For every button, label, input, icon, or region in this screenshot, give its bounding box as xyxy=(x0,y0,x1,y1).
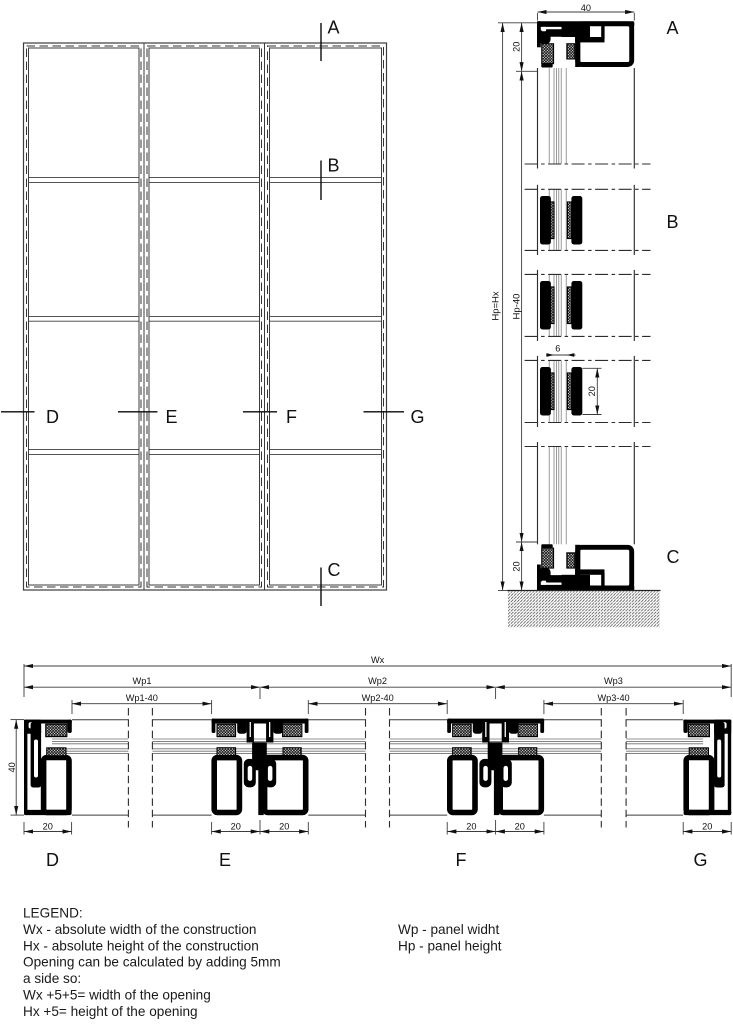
svg-text:20: 20 xyxy=(515,821,525,831)
svg-text:LEGEND:: LEGEND: xyxy=(23,906,83,921)
svg-text:G: G xyxy=(694,850,708,870)
svg-text:Wp2-40: Wp2-40 xyxy=(362,693,394,703)
svg-text:E: E xyxy=(166,407,178,427)
svg-text:Wp1: Wp1 xyxy=(133,676,152,686)
svg-text:A: A xyxy=(328,18,340,38)
svg-text:20: 20 xyxy=(231,821,241,831)
svg-text:Wx - absolute width of the con: Wx - absolute width of the construction xyxy=(23,922,256,937)
svg-text:F: F xyxy=(286,407,297,427)
svg-text:20: 20 xyxy=(279,821,289,831)
svg-text:20: 20 xyxy=(466,821,476,831)
svg-text:20: 20 xyxy=(587,386,597,396)
svg-text:C: C xyxy=(667,547,680,567)
svg-text:Wp2: Wp2 xyxy=(368,676,387,686)
svg-text:Wp3: Wp3 xyxy=(604,676,623,686)
svg-text:6: 6 xyxy=(555,344,560,354)
svg-text:G: G xyxy=(411,407,425,427)
svg-text:40: 40 xyxy=(581,3,591,13)
svg-text:B: B xyxy=(667,212,679,232)
svg-text:Wx: Wx xyxy=(371,655,385,665)
svg-text:Wx +5+5= width of the opening: Wx +5+5= width of the opening xyxy=(23,988,211,1003)
svg-text:D: D xyxy=(46,850,59,870)
svg-text:Opening can be calculated by a: Opening can be calculated by adding 5mm xyxy=(23,955,281,970)
svg-text:Wp - panel widht: Wp - panel widht xyxy=(398,922,499,937)
svg-text:Hx +5= height of the opening: Hx +5= height of the opening xyxy=(23,1004,198,1019)
svg-text:Hp-40: Hp-40 xyxy=(511,294,522,320)
svg-text:20: 20 xyxy=(702,821,712,831)
svg-text:40: 40 xyxy=(7,762,17,772)
svg-text:C: C xyxy=(328,560,341,580)
svg-text:Hp - panel height: Hp - panel height xyxy=(398,938,502,953)
svg-text:F: F xyxy=(456,850,467,870)
svg-text:B: B xyxy=(328,156,340,176)
svg-text:20: 20 xyxy=(512,561,522,571)
svg-text:20: 20 xyxy=(43,821,53,831)
svg-text:E: E xyxy=(219,850,231,870)
svg-text:A: A xyxy=(667,18,679,38)
svg-text:a side so:: a side so: xyxy=(23,971,81,986)
svg-text:Wp3-40: Wp3-40 xyxy=(598,693,630,703)
svg-text:Hx - absolute height of the c: Hx - absolute height of the construction xyxy=(23,938,259,953)
svg-text:Hp=Hx: Hp=Hx xyxy=(490,291,501,321)
svg-text:D: D xyxy=(46,407,59,427)
svg-text:20: 20 xyxy=(512,42,522,52)
svg-text:Wp1-40: Wp1-40 xyxy=(126,693,158,703)
